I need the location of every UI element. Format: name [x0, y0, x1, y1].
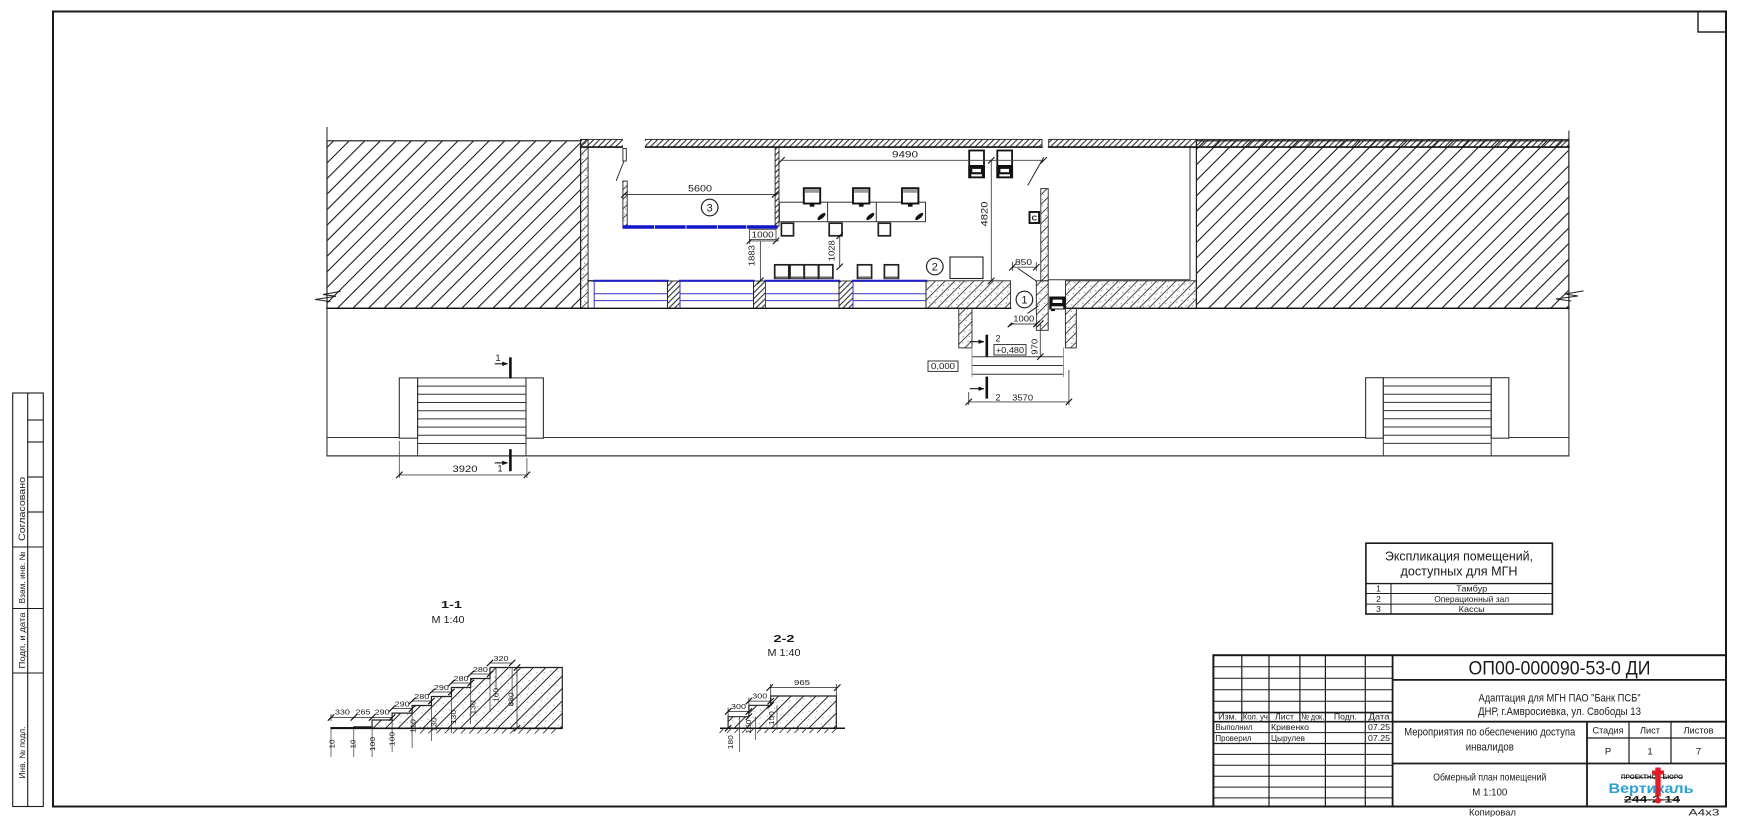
svg-text:Подп. и дата: Подп. и дата: [17, 612, 27, 668]
svg-text:ДНР, г.Амвросиевка, ул. Свобод: ДНР, г.Амвросиевка, ул. Свободы 13: [1478, 706, 1641, 718]
svg-text:280: 280: [454, 674, 469, 683]
svg-text:2: 2: [995, 334, 1000, 344]
svg-text:1-1: 1-1: [441, 600, 463, 611]
svg-text:ОП00-000090-53-0 ДИ: ОП00-000090-53-0 ДИ: [1469, 659, 1651, 680]
svg-text:965: 965: [794, 678, 810, 687]
svg-text:130: 130: [429, 718, 438, 732]
svg-text:150: 150: [744, 720, 753, 734]
svg-text:Тамбур: Тамбур: [1456, 583, 1487, 593]
svg-text:300: 300: [752, 692, 767, 701]
svg-text:330: 330: [335, 708, 350, 717]
svg-text:А4х3: А4х3: [1689, 808, 1720, 817]
svg-text:M 1:40: M 1:40: [432, 615, 465, 626]
svg-text:3: 3: [707, 202, 713, 214]
svg-text:880: 880: [506, 693, 515, 707]
svg-text:№ док.: № док.: [1301, 712, 1324, 722]
svg-text:Взам. инв. №: Взам. инв. №: [18, 551, 27, 603]
svg-text:100: 100: [368, 737, 377, 751]
svg-text:Листов: Листов: [1684, 726, 1714, 737]
svg-text:110: 110: [409, 719, 418, 733]
svg-text:0,000: 0,000: [931, 361, 955, 371]
svg-text:1000: 1000: [1013, 314, 1034, 324]
svg-text:290: 290: [434, 683, 449, 692]
svg-text:Подп.: Подп.: [1334, 712, 1357, 722]
svg-text:Выполнил: Выполнил: [1216, 722, 1253, 732]
svg-text:280: 280: [414, 692, 429, 701]
svg-text:1: 1: [495, 353, 500, 363]
svg-text:1: 1: [1376, 583, 1381, 593]
svg-text:Изм.: Изм.: [1218, 712, 1237, 722]
svg-text:160: 160: [492, 688, 501, 702]
svg-text:Согласовано: Согласовано: [17, 477, 27, 541]
svg-text:100: 100: [388, 732, 397, 746]
svg-text:290: 290: [395, 699, 410, 708]
svg-text:280: 280: [473, 665, 488, 674]
svg-text:доступных для МГН: доступных для МГН: [1401, 563, 1518, 578]
svg-text:Операционный зал: Операционный зал: [1434, 594, 1509, 604]
svg-text:5600: 5600: [688, 184, 712, 194]
svg-text:265: 265: [356, 708, 371, 717]
svg-text:Цырулев: Цырулев: [1271, 733, 1305, 743]
svg-text:Кривенко: Кривенко: [1271, 722, 1309, 732]
svg-text:Адаптация для МГН ПАО "Банк ПС: Адаптация для МГН ПАО "Банк ПСБ": [1479, 693, 1641, 705]
svg-text:3920: 3920: [453, 464, 478, 474]
svg-text:M 1:40: M 1:40: [768, 648, 801, 659]
svg-text:07.25: 07.25: [1368, 733, 1390, 743]
svg-text:3570: 3570: [1012, 392, 1033, 402]
svg-text:Проверил: Проверил: [1216, 733, 1252, 743]
svg-text:4820: 4820: [980, 202, 990, 227]
svg-text:1883: 1883: [747, 245, 757, 266]
svg-text:+0,480: +0,480: [996, 345, 1024, 355]
svg-text:Мероприятия по обеспечению дос: Мероприятия по обеспечению доступа: [1404, 727, 1576, 739]
svg-text:инвалидов: инвалидов: [1466, 742, 1514, 754]
svg-text:2: 2: [932, 261, 938, 273]
svg-text:130: 130: [449, 710, 458, 724]
svg-text:850: 850: [1015, 257, 1032, 267]
svg-text:1: 1: [1647, 747, 1652, 758]
svg-text:Лист: Лист: [1640, 726, 1661, 737]
svg-text:1028: 1028: [827, 240, 837, 261]
svg-text:1: 1: [497, 464, 502, 474]
svg-text:244-2-14: 244-2-14: [1624, 795, 1680, 805]
svg-text:Кол. уч: Кол. уч: [1243, 712, 1268, 722]
svg-text:Инв. № подл.: Инв. № подл.: [18, 727, 27, 779]
svg-text:Обмерный план помещений: Обмерный план помещений: [1433, 772, 1546, 784]
svg-text:Лист: Лист: [1275, 712, 1294, 722]
svg-text:М 1:100: М 1:100: [1472, 787, 1507, 799]
svg-text:1000: 1000: [752, 229, 774, 239]
svg-text:9490: 9490: [892, 149, 918, 159]
svg-text:130: 130: [469, 701, 478, 715]
svg-text:3: 3: [1376, 604, 1381, 614]
svg-text:2: 2: [1376, 594, 1381, 604]
svg-text:Р: Р: [1605, 747, 1611, 758]
svg-text:10: 10: [349, 740, 358, 749]
svg-text:2-2: 2-2: [774, 634, 796, 645]
svg-text:Копировал: Копировал: [1469, 808, 1516, 817]
svg-text:320: 320: [494, 654, 509, 663]
svg-text:10: 10: [328, 740, 337, 749]
svg-text:Дата: Дата: [1369, 712, 1390, 722]
svg-text:Стадия: Стадия: [1593, 726, 1624, 737]
svg-text:180: 180: [726, 735, 735, 749]
svg-text:07.25: 07.25: [1368, 722, 1390, 732]
svg-text:970: 970: [1029, 338, 1039, 354]
svg-text:290: 290: [375, 708, 390, 717]
svg-text:150: 150: [767, 711, 776, 725]
svg-text:2: 2: [995, 392, 1000, 402]
svg-text:7: 7: [1696, 747, 1701, 758]
svg-text:Экспликация помещений,: Экспликация помещений,: [1385, 549, 1533, 564]
svg-text:300: 300: [731, 702, 746, 711]
svg-text:Кассы: Кассы: [1459, 604, 1485, 614]
svg-text:С: С: [1032, 214, 1038, 223]
svg-text:1: 1: [1021, 294, 1027, 306]
